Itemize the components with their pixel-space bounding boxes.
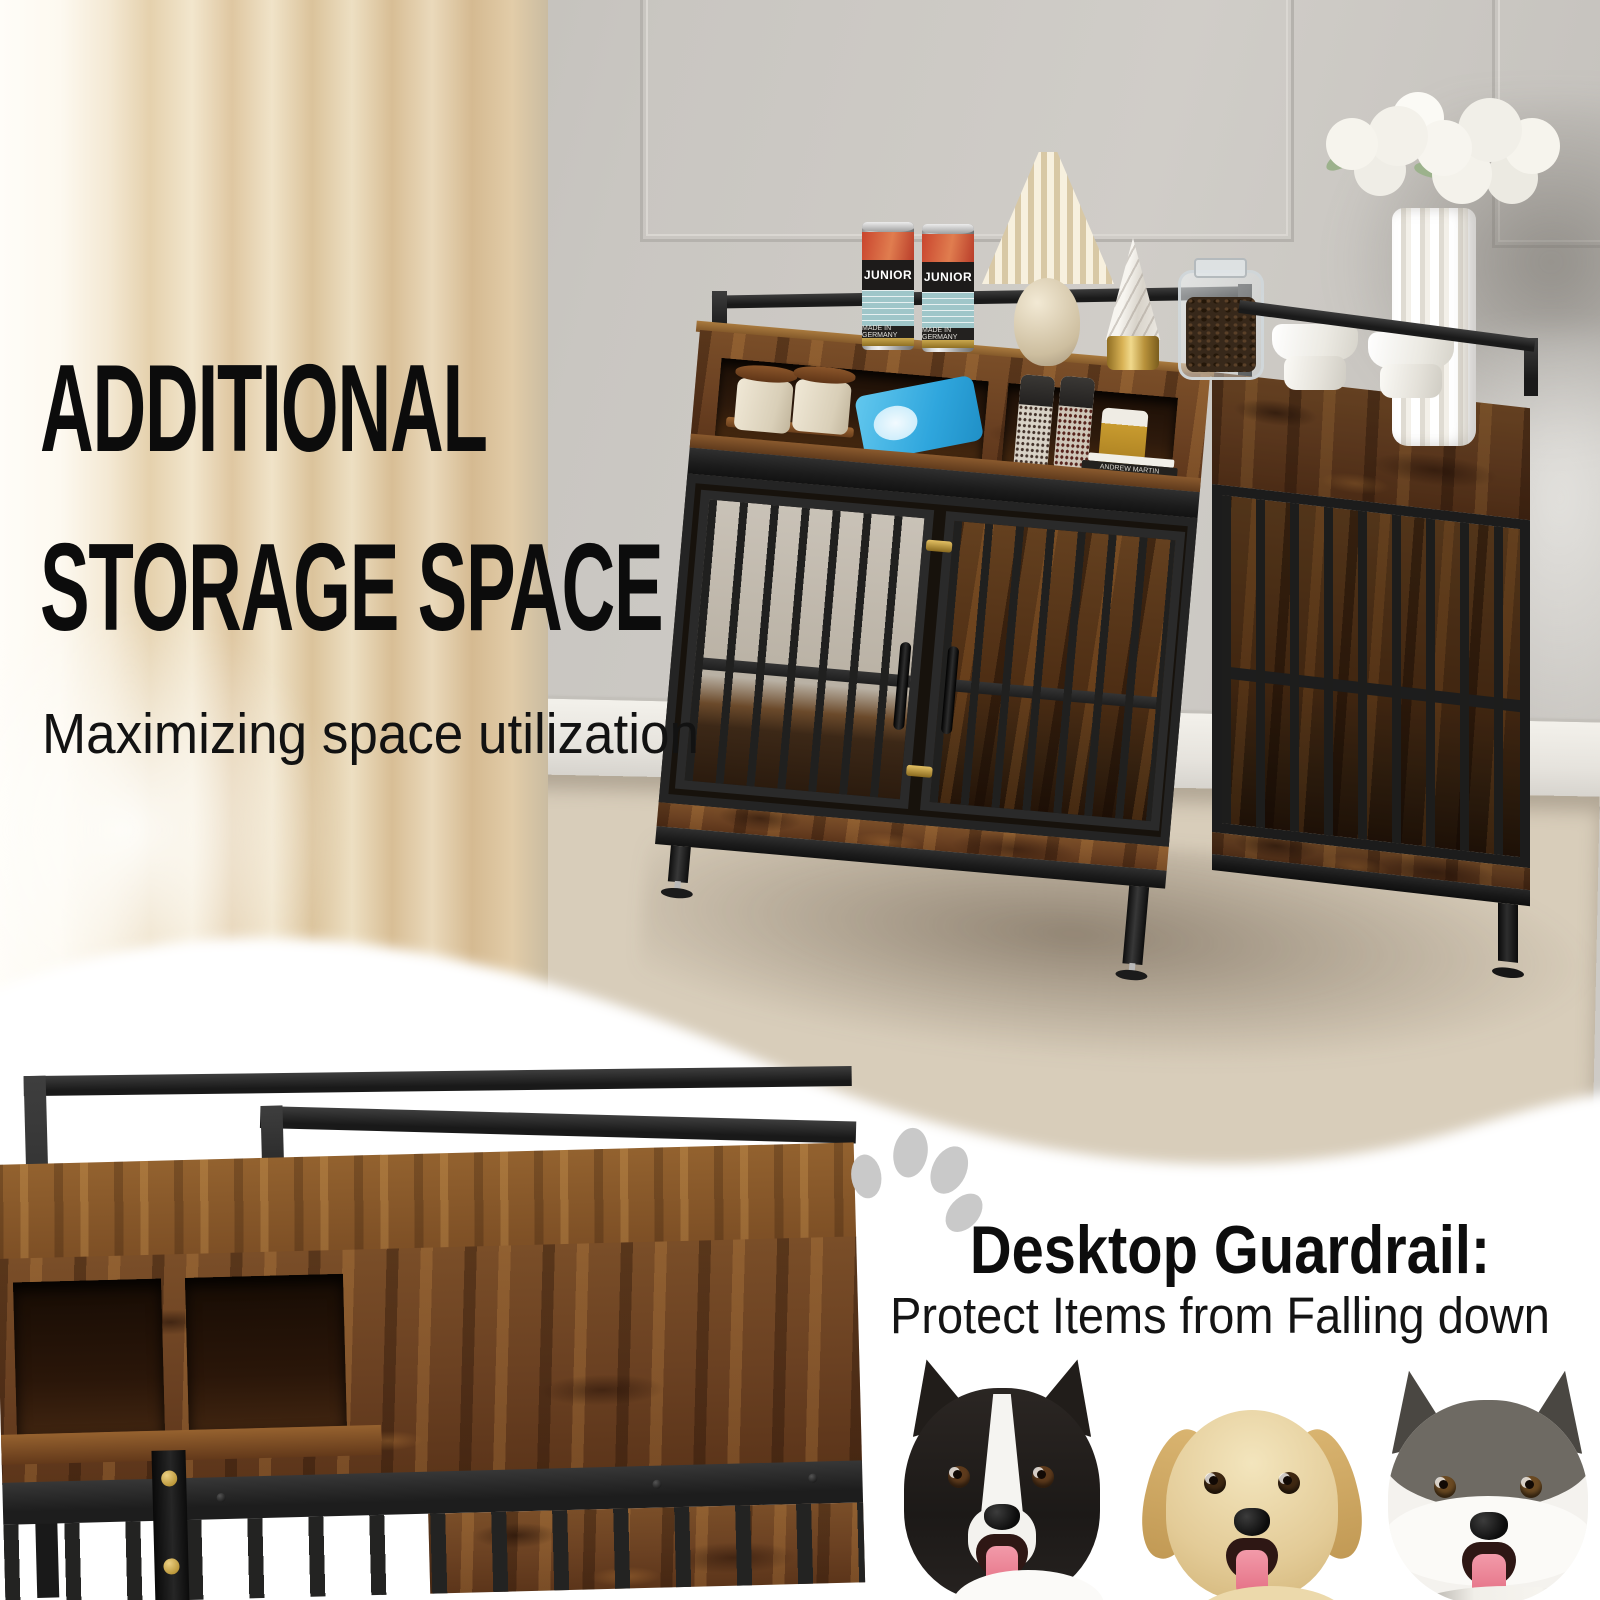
bowl-cup [1272, 324, 1358, 360]
adjustable-foot [668, 845, 691, 883]
can-text-band [922, 292, 974, 328]
collie-eye [1032, 1466, 1054, 1488]
golden-eye [1278, 1472, 1300, 1494]
grinder-cap [1059, 376, 1095, 409]
dog-food-can: JUNIOR MADE IN GERMANY [862, 222, 914, 350]
feature-title: Desktop Guardrail: [916, 1216, 1545, 1284]
wooden-canister [733, 377, 793, 434]
ceramic-tree-base [1107, 336, 1159, 370]
headline-line2: STORAGE SPACE [40, 526, 662, 650]
jar-lid [1194, 258, 1248, 278]
screw [652, 1480, 661, 1489]
cage-door-right [920, 511, 1185, 831]
husky-ruff [1396, 1586, 1588, 1600]
golden-eye [1204, 1472, 1226, 1494]
can-gold-rim [922, 340, 974, 348]
husky-eye [1434, 1476, 1456, 1498]
closeup-hinge [151, 1450, 189, 1600]
collie-chest [952, 1570, 1104, 1600]
can-label: JUNIOR [862, 260, 914, 290]
adjustable-foot [1498, 903, 1518, 963]
collie-nose [984, 1504, 1020, 1530]
pleated-lamp-base [1014, 278, 1080, 366]
closeup-cubby [13, 1279, 165, 1435]
salt-grinder [1013, 374, 1055, 471]
golden-nose [1234, 1508, 1270, 1536]
closeup-cubby [185, 1274, 347, 1430]
grinder-cap [1019, 374, 1055, 407]
collie-eye [948, 1466, 970, 1488]
wall-panel-molding [640, 0, 1294, 242]
closeup-storage-band [0, 1236, 862, 1484]
flower-leaf [1513, 136, 1558, 168]
guardrail-outer-rail [24, 1066, 852, 1096]
can-origin: MADE IN GERMANY [862, 326, 914, 338]
canister-lid [735, 363, 798, 384]
dog-golden-retriever [1148, 1388, 1358, 1600]
door-bars [685, 499, 925, 799]
can-gold-rim [862, 338, 914, 346]
bowl-base [1380, 364, 1442, 398]
bowl-base [1284, 356, 1346, 390]
headline-line1: ADDITIONAL [40, 347, 487, 471]
crate-front: ANDREW MARTIN [655, 330, 1210, 889]
grinder-body [1013, 404, 1052, 471]
guardrail-back-rail [712, 286, 1244, 308]
husky-nose [1470, 1512, 1508, 1540]
dog-border-collie [878, 1358, 1128, 1600]
screw [808, 1474, 817, 1483]
can-art [862, 232, 914, 260]
golden-head [1166, 1410, 1338, 1600]
headline-subtitle: Maximizing space utilization [42, 706, 699, 763]
husky-eye [1520, 1476, 1542, 1498]
can-origin: MADE IN GERMANY [922, 328, 974, 340]
pet-bowl [1368, 332, 1454, 398]
pet-bowl [1272, 324, 1358, 390]
side-cage [1212, 484, 1530, 868]
cage-door-left [675, 490, 934, 809]
can-rim [922, 224, 974, 234]
can-label: JUNIOR [922, 262, 974, 292]
bean-jar [1178, 270, 1264, 380]
husky-head [1388, 1400, 1588, 1600]
white-flowers [1318, 96, 1573, 176]
can-text-band [862, 290, 914, 326]
canister-lid [793, 364, 856, 385]
crate-side [1212, 372, 1530, 908]
feature-description: Protect Items from Falling down [870, 1290, 1569, 1341]
hinge-pin [926, 540, 953, 553]
can-art [922, 234, 974, 262]
guardrail-inner-rail [260, 1106, 856, 1144]
collie-head [904, 1388, 1100, 1600]
storage-cubby-right: ANDREW MARTIN [1002, 383, 1178, 476]
hinge-pin-gold [161, 1470, 177, 1486]
flower-bloom [1326, 118, 1378, 170]
screw [217, 1493, 226, 1502]
can-rim [862, 222, 914, 232]
dog-siberian-husky [1368, 1370, 1600, 1600]
product-banner: JUNIOR MADE IN GERMANY JUNIOR MADE IN GE… [0, 0, 1600, 1600]
closeup-photo [0, 992, 870, 1600]
husky-mask [1388, 1400, 1588, 1508]
side-bars [1222, 495, 1520, 857]
hinge-pin [906, 765, 933, 778]
cage-front [659, 473, 1198, 846]
hinge-pin-gold [163, 1558, 179, 1574]
dog-food-can: JUNIOR MADE IN GERMANY [922, 224, 974, 352]
door-bars [930, 521, 1176, 821]
wooden-canister [792, 379, 852, 436]
golden-chest [1196, 1586, 1346, 1600]
